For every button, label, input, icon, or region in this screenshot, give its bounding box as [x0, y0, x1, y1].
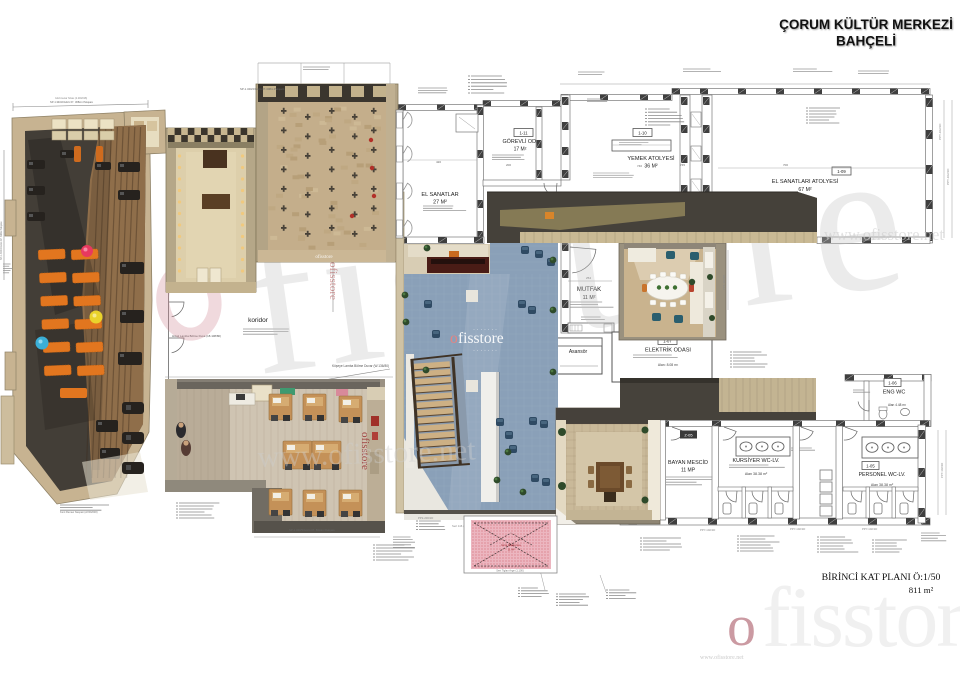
- svg-text:1-05: 1-05: [866, 464, 875, 469]
- svg-text:11 MP: 11 MP: [681, 468, 696, 474]
- svg-text:PPY-102/1D: PPY-102/1D: [700, 528, 715, 532]
- svg-text:1-06: 1-06: [888, 381, 897, 386]
- svg-text:ofisstore: ofisstore: [315, 255, 333, 260]
- svg-text:BİRİNCİ KAT PLANI Ö:1/50: BİRİNCİ KAT PLANI Ö:1/50: [822, 571, 941, 583]
- svg-text:SP-1.340/2/Gözü 07. 308cm Pekş: SP-1.340/2/Gözü 07. 308cm Pekşare: [50, 100, 94, 104]
- svg-text:· · · · · · ·: · · · · · · ·: [473, 327, 497, 333]
- svg-text:420: 420: [436, 160, 441, 164]
- svg-text:1-10: 1-10: [638, 131, 647, 136]
- svg-text:Alan 4.48 m²: Alan 4.48 m²: [888, 403, 906, 407]
- svg-text:fisstore: fisstore: [762, 569, 960, 665]
- svg-text:KURSİYER WC-LV.: KURSİYER WC-LV.: [732, 457, 779, 464]
- svg-text:Alan: 8.08 m²: Alan: 8.08 m²: [658, 363, 679, 367]
- svg-text:PPY-102/1D: PPY-102/1D: [938, 123, 942, 140]
- svg-text:· · · · · · ·: · · · · · · ·: [473, 348, 497, 354]
- svg-text:Giriş Platformu: Giriş Platformu: [501, 543, 521, 547]
- svg-text:PP2-200/1D: PP2-200/1D: [418, 516, 433, 520]
- svg-text:ofisstore: ofisstore: [327, 262, 339, 300]
- svg-text:811 m²: 811 m²: [909, 585, 934, 595]
- svg-text:PPY-102/1D: PPY-102/1D: [790, 527, 805, 531]
- svg-text:GÖREVLİ OD.: GÖREVLİ OD.: [502, 138, 537, 145]
- svg-text:SP-1.340/2/Gözü.07-308m Pekşar: SP-1.340/2/Gözü.07-308m Pekşarn: [240, 87, 285, 91]
- svg-text:www.ofisstore.net: www.ofisstore.net: [700, 654, 744, 661]
- svg-text:www.ofisstore.net: www.ofisstore.net: [824, 225, 944, 244]
- svg-text:BAYAN MESCİD: BAYAN MESCİD: [668, 459, 708, 466]
- svg-text:PPY-102/1D: PPY-102/1D: [946, 168, 950, 185]
- svg-text:Gözü kenar hizası (2.20/2018): Gözü kenar hizası (2.20/2018): [55, 97, 87, 100]
- svg-text:PERSONEL WC-LV.: PERSONEL WC-LV.: [859, 472, 906, 478]
- svg-text:Z-05: Z-05: [684, 433, 693, 438]
- svg-text:PPY-102/1D: PPY-102/1D: [862, 527, 877, 531]
- svg-text:Kent Renew Nespati (2/20/2030): Kent Renew Nespati (2/20/2030): [60, 510, 98, 514]
- svg-text:ÇORUM KÜLTÜR MERKEZİ: ÇORUM KÜLTÜR MERKEZİ: [779, 17, 953, 32]
- svg-text:SP-1.340/2/Gözü 07. 308m Pekşa: SP-1.340/2/Gözü 07. 308m Pekşare: [0, 221, 3, 260]
- svg-text:o: o: [727, 593, 756, 658]
- svg-text:BAHÇELİ: BAHÇELİ: [836, 34, 896, 49]
- svg-text:o: o: [450, 330, 458, 347]
- svg-text:1-11: 1-11: [519, 131, 528, 136]
- svg-text:Alan 38.38 m²: Alan 38.38 m²: [745, 472, 768, 476]
- svg-text:ENG WC: ENG WC: [883, 390, 906, 396]
- svg-text:PPY-102/1D: PPY-102/1D: [940, 463, 944, 478]
- svg-text:SP-1.340/5/Gözü 07. Bölüm Pekş: SP-1.340/5/Gözü 07. Bölüm Pekşare: [289, 528, 335, 532]
- svg-text:Sert Tiglan Arge (1.100): Sert Tiglan Arge (1.100): [496, 569, 524, 573]
- svg-text:11 M²: 11 M²: [508, 548, 515, 552]
- svg-text:Alan 38.38 m²: Alan 38.38 m²: [871, 483, 894, 487]
- svg-text:PP1-102/1D: PP1-102/1D: [722, 275, 726, 290]
- svg-text:17 M²: 17 M²: [514, 147, 527, 153]
